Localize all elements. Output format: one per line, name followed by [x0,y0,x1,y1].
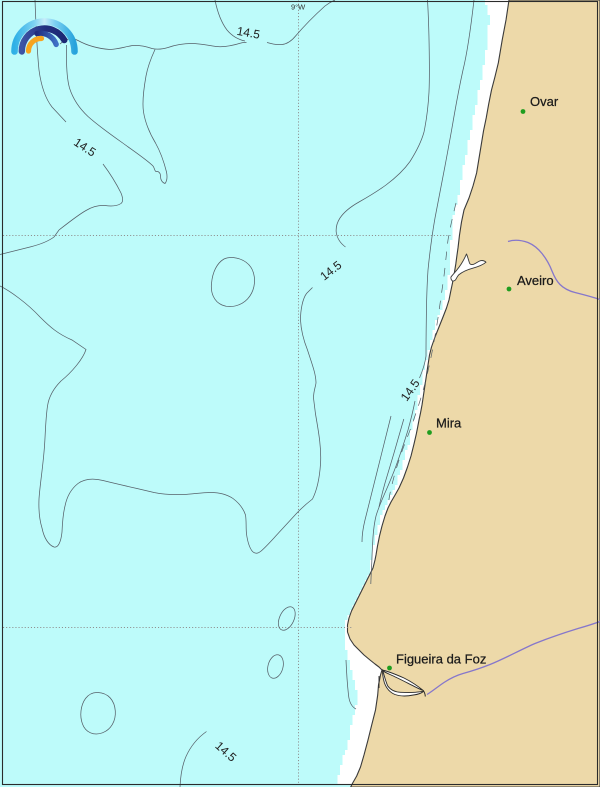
svg-text:9°W: 9°W [291,3,306,12]
svg-text:Ovar: Ovar [530,94,559,109]
svg-text:Aveiro: Aveiro [517,273,554,288]
svg-text:Figueira da Foz: Figueira da Foz [396,652,486,667]
svg-text:Mira: Mira [436,416,462,431]
